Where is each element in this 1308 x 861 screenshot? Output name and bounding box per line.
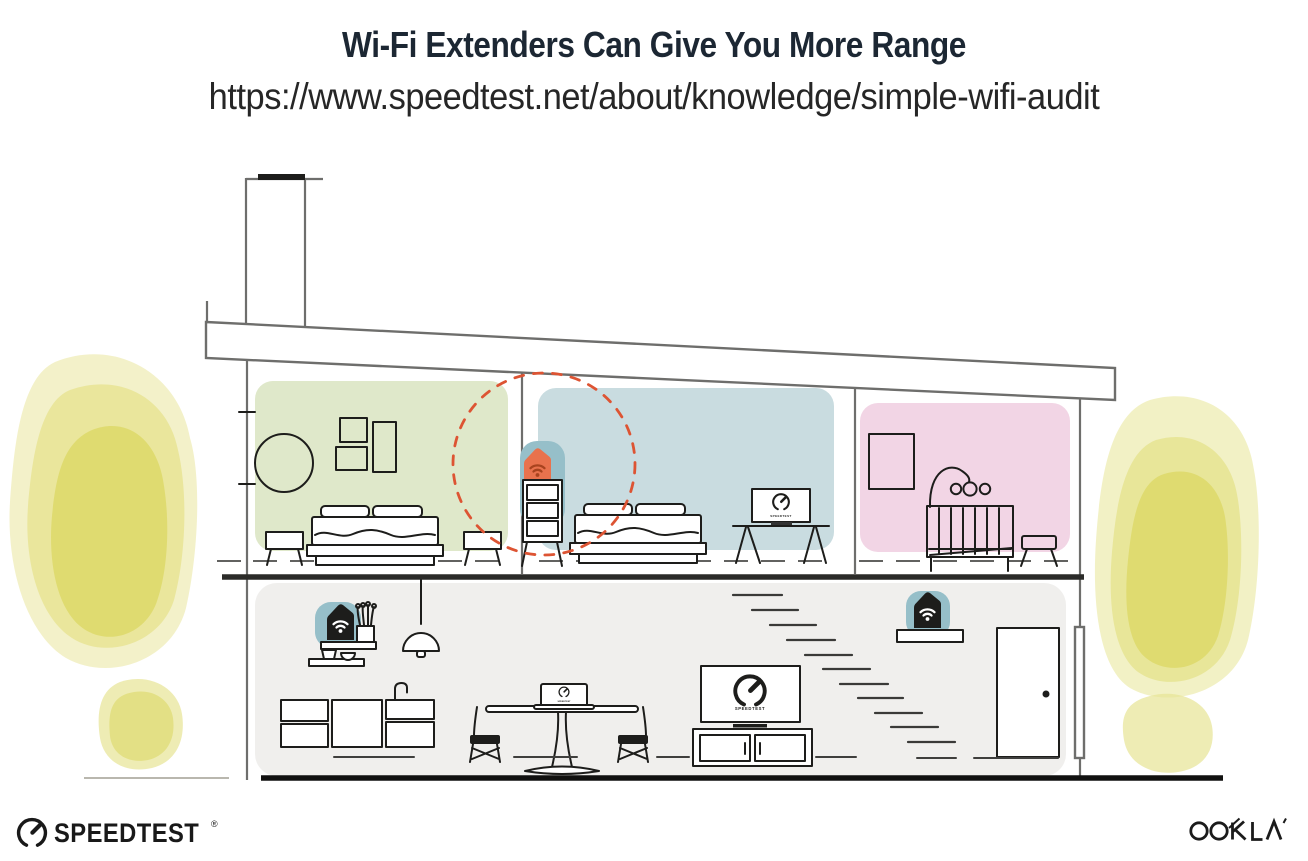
bed bbox=[307, 506, 443, 565]
speedtest-wordmark: SPEEDTEST bbox=[54, 818, 199, 849]
tv-base bbox=[771, 522, 792, 525]
door-knob bbox=[1043, 691, 1050, 698]
tv-living-room: SPEEDTEST bbox=[701, 666, 800, 728]
speedtest-logo: SPEEDTEST ® bbox=[16, 817, 218, 849]
tv-screen-label: SPEEDTEST bbox=[735, 706, 765, 711]
speedtest-gauge-icon bbox=[16, 817, 48, 849]
nursery-pink-bg bbox=[860, 403, 1070, 552]
laptop: SPEEDTEST bbox=[534, 684, 594, 709]
lower-shelf bbox=[309, 659, 364, 666]
wall-trim bbox=[1075, 627, 1084, 758]
laptop-screen-label: SPEEDTEST bbox=[557, 701, 571, 703]
tv-screen-label: SPEEDTEST bbox=[770, 514, 791, 518]
cup bbox=[322, 650, 336, 659]
nightstand bbox=[266, 532, 303, 565]
bed bbox=[570, 504, 706, 563]
ookla-logo bbox=[1188, 811, 1294, 847]
registered-mark: ® bbox=[211, 819, 218, 829]
footer: SPEEDTEST ® bbox=[0, 807, 1308, 853]
chimney bbox=[246, 174, 323, 328]
tv-console bbox=[693, 729, 812, 766]
bowl bbox=[341, 653, 355, 660]
nightstand bbox=[464, 532, 501, 565]
yellow-watercolor-left bbox=[9, 354, 197, 769]
tv-base bbox=[733, 724, 767, 728]
infographic: Wi-Fi Extenders Can Give You More Range … bbox=[0, 0, 1308, 861]
chimney-cap bbox=[258, 174, 305, 180]
house-illustration: SPEEDTEST bbox=[0, 0, 1308, 861]
front-door bbox=[997, 628, 1059, 757]
yellow-watercolor-right bbox=[1095, 396, 1259, 772]
